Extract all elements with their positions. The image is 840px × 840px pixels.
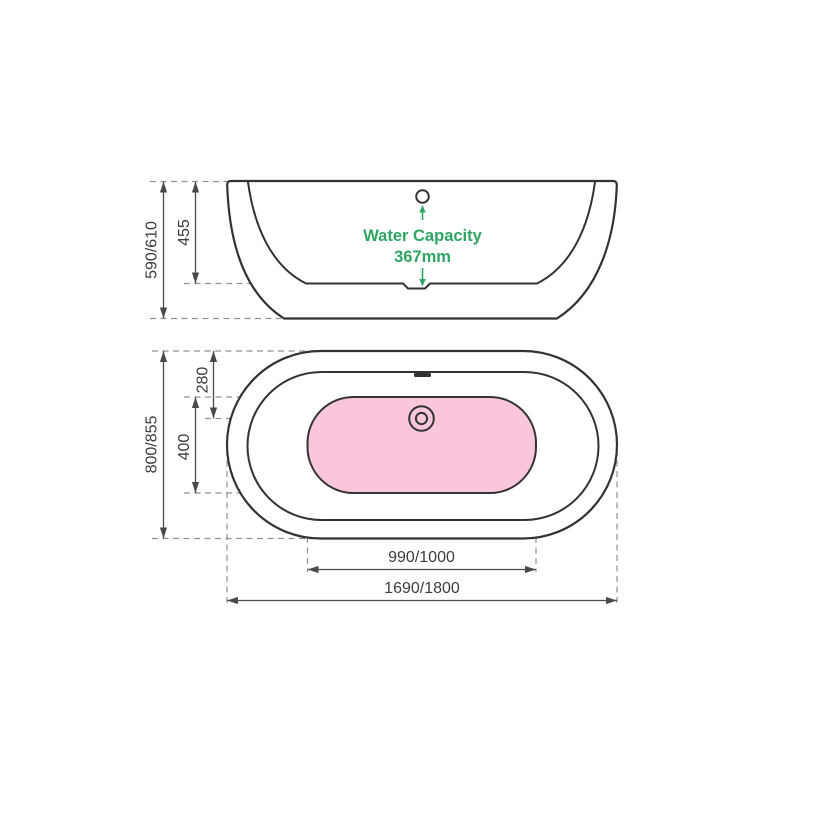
overflow-marker-icon xyxy=(414,373,431,377)
side-elevation-view: Water Capacity 367mm 590/610 455 xyxy=(144,181,617,319)
dimension-label-basin-depth: 455 xyxy=(176,219,193,246)
water-capacity-value: 367mm xyxy=(394,248,451,266)
water-capacity-label: Water Capacity xyxy=(363,227,482,245)
dimension-label-overall-height: 590/610 xyxy=(144,221,161,279)
dimension-label-overall-length: 1690/1800 xyxy=(384,580,460,597)
tub-plan-basin-floor xyxy=(308,397,537,493)
plan-view: 800/855 400 280 990/1000 1690/1800 xyxy=(144,351,617,603)
dimension-label-overall-depth: 800/855 xyxy=(144,415,161,473)
dimension-label-floor-length: 990/1000 xyxy=(388,549,455,566)
bathtub-technical-drawing: Water Capacity 367mm 590/610 455 xyxy=(0,0,840,840)
dimension-label-floor-depth: 400 xyxy=(176,434,193,461)
dimension-label-drain-offset: 280 xyxy=(195,367,212,394)
